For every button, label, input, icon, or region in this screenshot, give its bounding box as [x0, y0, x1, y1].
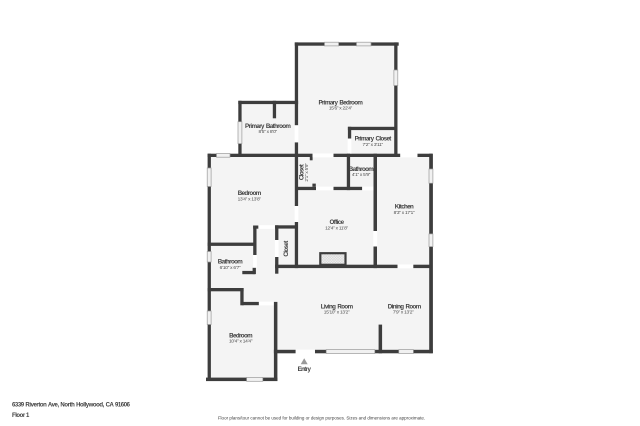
svg-text:10’4” x 14’4”: 10’4” x 14’4”: [229, 339, 253, 345]
svg-text:Primary Closet: Primary Closet: [355, 135, 392, 142]
svg-text:Bathroom: Bathroom: [218, 259, 244, 266]
svg-text:15’6” x 22’4”: 15’6” x 22’4”: [329, 106, 353, 112]
svg-text:15’10” x 13’2”: 15’10” x 13’2”: [324, 310, 350, 316]
svg-text:6339 Riverton Ave, North Holly: 6339 Riverton Ave, North Hollywood, CA 9…: [12, 403, 131, 409]
svg-text:Dining Room: Dining Room: [388, 304, 422, 311]
svg-text:8’3” x 17’1”: 8’3” x 17’1”: [394, 210, 415, 216]
svg-text:Entry: Entry: [298, 366, 312, 373]
svg-text:4’1” x 5’9”: 4’1” x 5’9”: [352, 172, 371, 178]
svg-text:Floor plans/tour cannot be use: Floor plans/tour cannot be used for buil…: [218, 416, 425, 421]
svg-text:Bathroom: Bathroom: [349, 166, 375, 173]
svg-text:13’4” x 13’8”: 13’4” x 13’8”: [238, 196, 262, 202]
svg-text:Living Room: Living Room: [321, 304, 354, 311]
svg-text:2’1” x 5’9”: 2’1” x 5’9”: [304, 163, 310, 182]
svg-text:8’5” x 8’0”: 8’5” x 8’0”: [259, 129, 278, 135]
svg-text:Office: Office: [330, 219, 345, 226]
svg-text:12’4” x 11’8”: 12’4” x 11’8”: [325, 226, 348, 232]
svg-text:Primary Bathroom: Primary Bathroom: [245, 123, 291, 130]
svg-text:6’10” x 6’7”: 6’10” x 6’7”: [220, 265, 241, 271]
svg-text:7’2” x 3’11”: 7’2” x 3’11”: [363, 142, 384, 148]
svg-text:Bedroom: Bedroom: [229, 333, 253, 340]
svg-text:Bedroom: Bedroom: [238, 190, 262, 197]
svg-text:7’9” x 13’2”: 7’9” x 13’2”: [393, 310, 414, 316]
svg-text:Kitchen: Kitchen: [395, 204, 414, 211]
svg-text:Primary Bedroom: Primary Bedroom: [318, 100, 363, 107]
svg-text:Floor 1: Floor 1: [12, 413, 30, 419]
svg-text:Closet: Closet: [283, 241, 290, 257]
